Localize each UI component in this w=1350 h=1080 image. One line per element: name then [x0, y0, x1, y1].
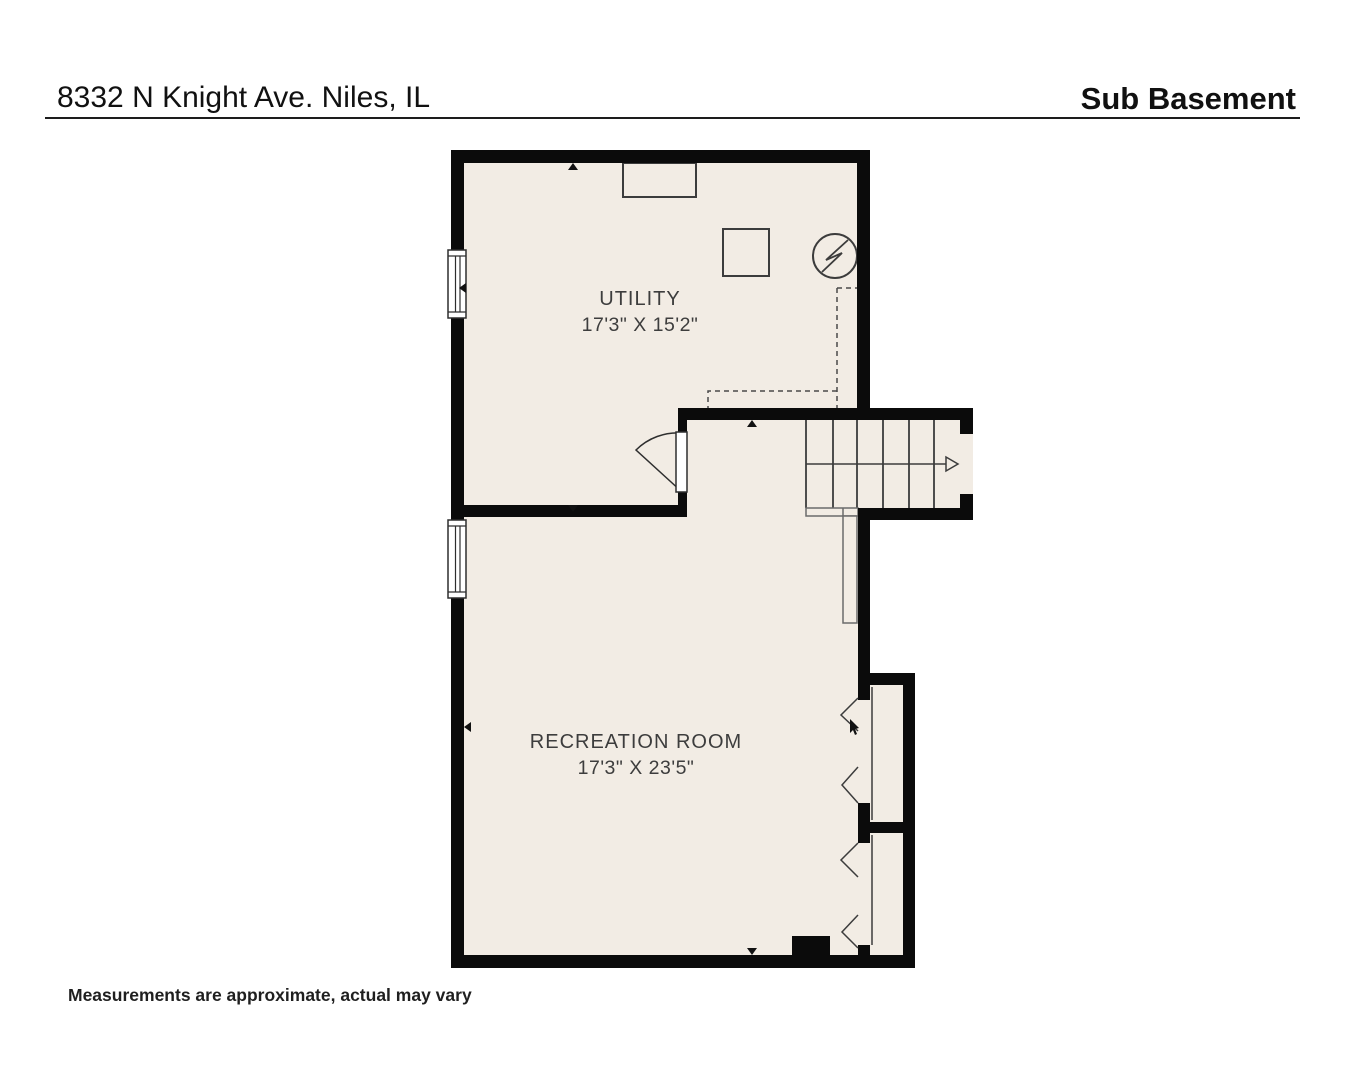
- stair-right-wall-upper: [960, 408, 973, 434]
- measurements-disclaimer: Measurements are approximate, actual may…: [68, 985, 472, 1006]
- closet-divider-wall: [858, 822, 903, 833]
- stair-bottom-step: [806, 508, 858, 516]
- utility-room-dimensions: 17'3" X 15'2": [582, 314, 699, 336]
- bottom-wall: [451, 955, 915, 968]
- recreation-right-wall: [858, 508, 870, 685]
- utility-room-label: UTILITY: [599, 288, 680, 310]
- closet-right-wall: [903, 673, 915, 968]
- floor-plan-page: 8332 N Knight Ave. Niles, IL Sub Basemen…: [0, 0, 1350, 1080]
- recreation-room-label: RECREATION ROOM: [530, 731, 742, 753]
- recreation-room-dimensions: 17'3" X 23'5": [578, 757, 695, 779]
- floor-plan-drawing: UTILITY 17'3" X 15'2" RECREATION ROOM 17…: [0, 0, 1350, 1080]
- utility-top-wall: [451, 150, 870, 163]
- chimney-icon: [792, 936, 830, 957]
- window-icon: [448, 250, 466, 318]
- window-icon: [448, 520, 466, 598]
- utility-bottom-wall: [451, 505, 687, 517]
- room-fills: [451, 150, 973, 968]
- utility-right-wall: [857, 150, 870, 408]
- stair-top-wall: [678, 408, 973, 420]
- main-footprint-fill: [451, 150, 870, 968]
- stair-bottom-wall: [858, 508, 973, 520]
- door-leaf: [676, 432, 687, 492]
- stair-knee-wall: [843, 516, 857, 623]
